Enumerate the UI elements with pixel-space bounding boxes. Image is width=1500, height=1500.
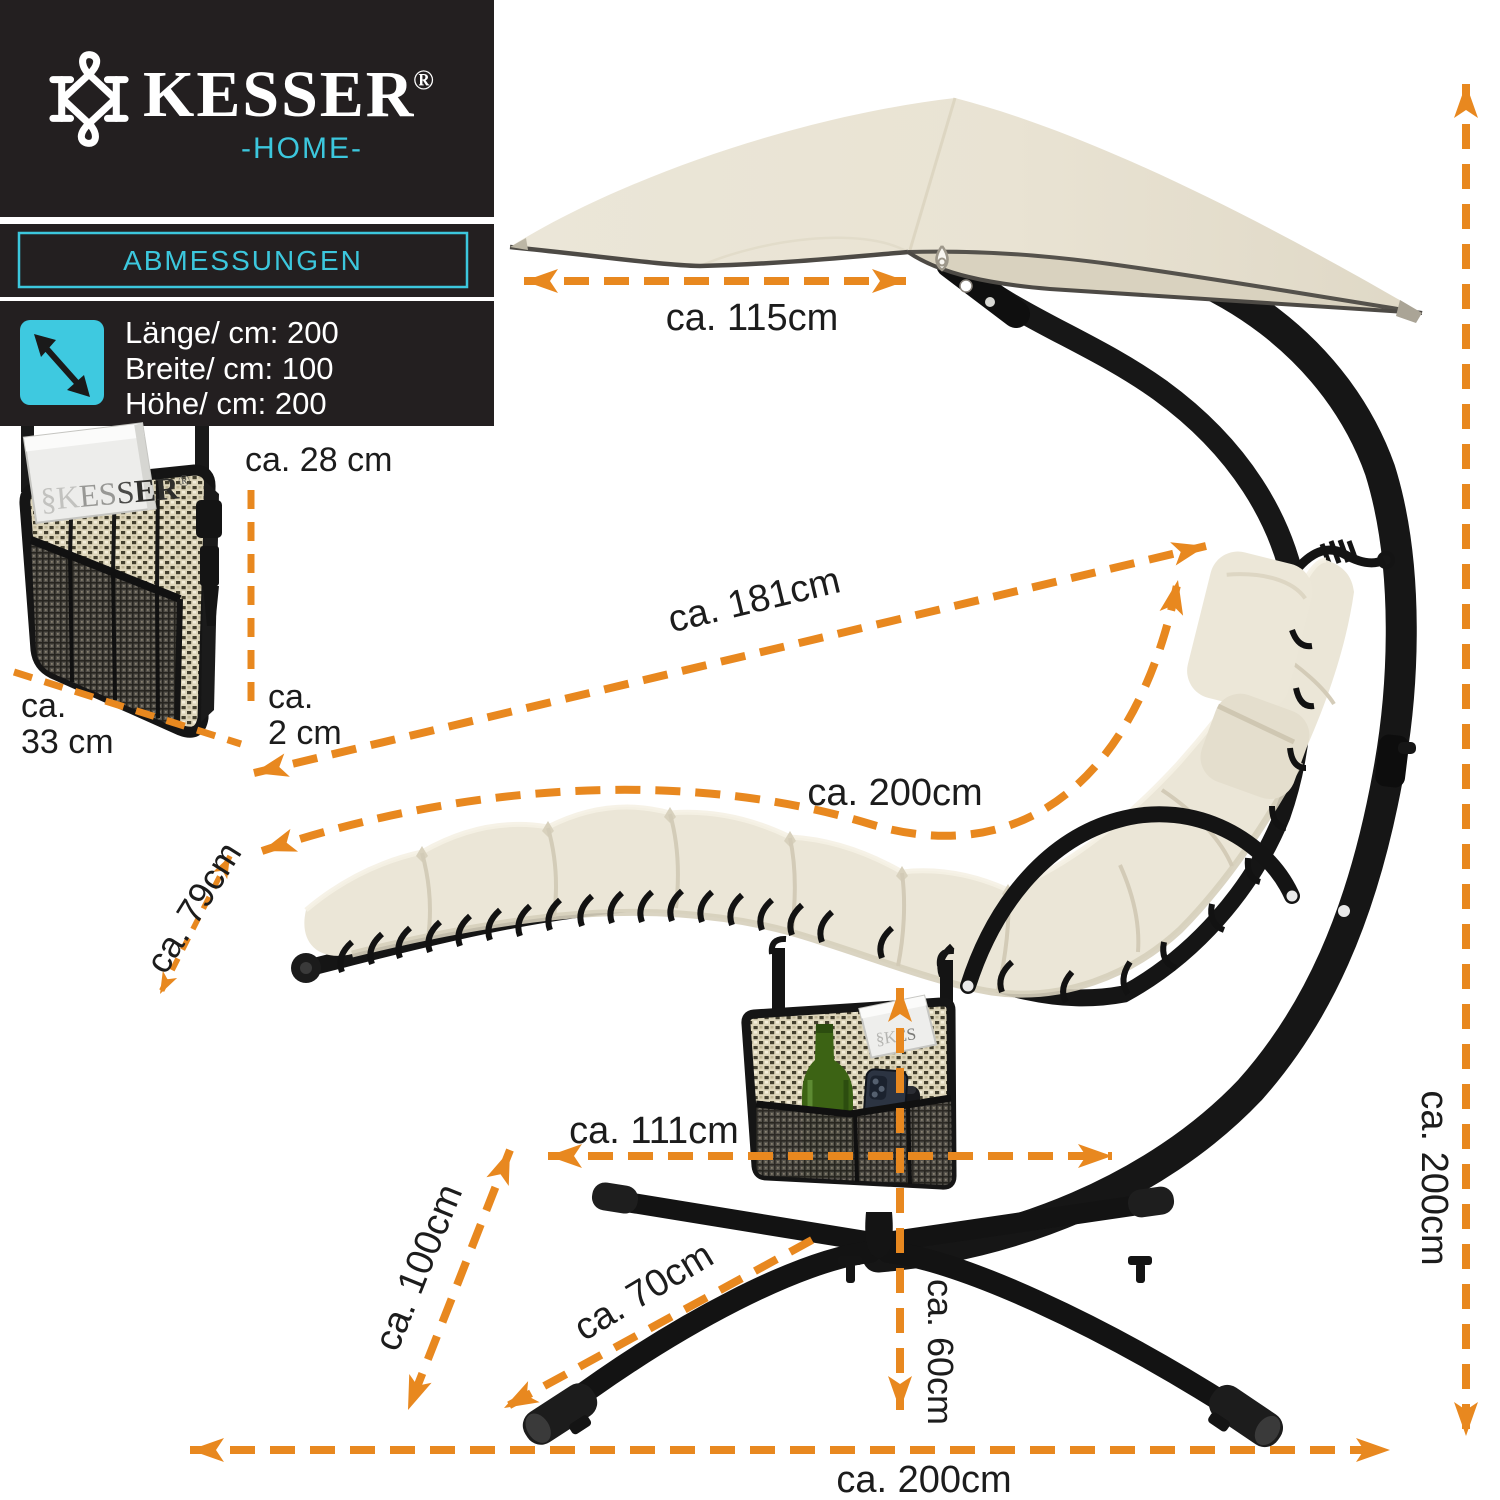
svg-text:ca. 200cm: ca. 200cm [807, 772, 982, 814]
svg-text:33 cm: 33 cm [21, 723, 114, 761]
svg-text:KESSER: KESSER [143, 58, 415, 131]
svg-text:Länge/ cm: 200: Länge/ cm: 200 [125, 315, 339, 350]
svg-text:-HOME-: -HOME- [241, 132, 363, 165]
svg-text:Breite/ cm: 100: Breite/ cm: 100 [125, 351, 333, 386]
svg-text:2 cm: 2 cm [268, 714, 342, 752]
svg-text:Höhe/ cm: 200: Höhe/ cm: 200 [125, 386, 327, 421]
svg-text:ca. 28 cm: ca. 28 cm [245, 441, 392, 479]
svg-text:®: ® [413, 65, 434, 96]
svg-text:ca. 115cm: ca. 115cm [666, 297, 838, 339]
svg-text:ca. 111cm: ca. 111cm [569, 1110, 739, 1152]
svg-text:ca.: ca. [21, 687, 66, 725]
svg-text:ca.: ca. [268, 678, 313, 716]
svg-text:ca. 200cm: ca. 200cm [836, 1459, 1011, 1500]
svg-text:ABMESSUNGEN: ABMESSUNGEN [123, 245, 363, 276]
svg-text:ca. 60cm: ca. 60cm [920, 1279, 961, 1425]
svg-text:ca. 200cm: ca. 200cm [1413, 1090, 1455, 1265]
